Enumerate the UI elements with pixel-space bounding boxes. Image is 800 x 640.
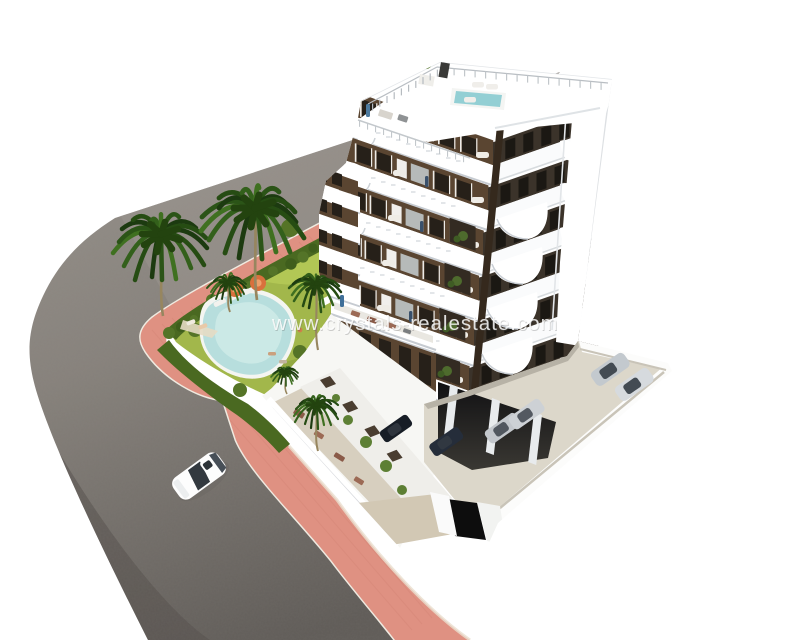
svg-text:www.crystals-realestate.com: www.crystals-realestate.com — [271, 312, 559, 335]
